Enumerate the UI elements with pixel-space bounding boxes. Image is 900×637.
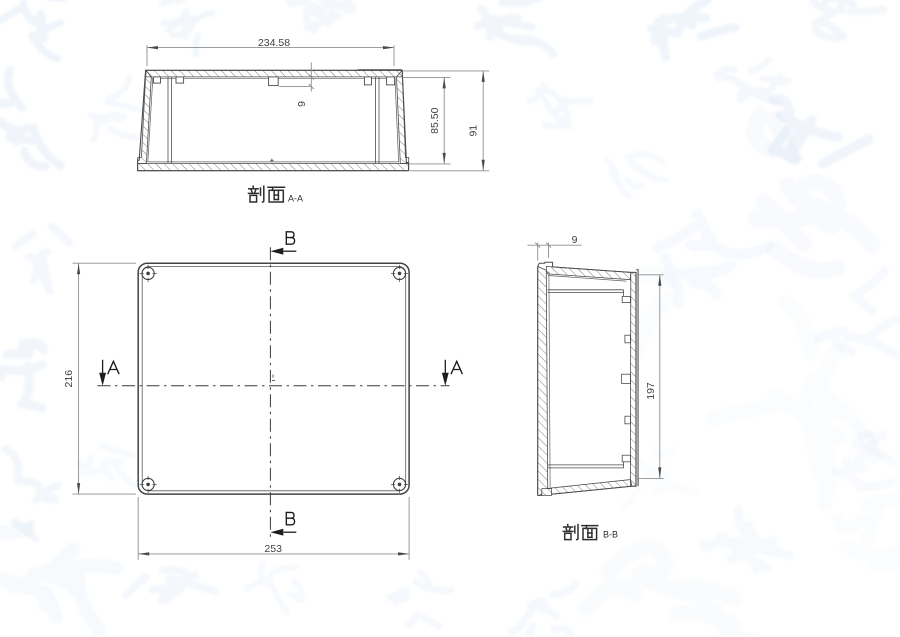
svg-text:9: 9 — [296, 101, 308, 107]
svg-text:253: 253 — [264, 543, 282, 555]
svg-text:9: 9 — [572, 234, 578, 246]
svg-text:A-A: A-A — [288, 194, 303, 204]
svg-text:B-B: B-B — [603, 530, 618, 540]
svg-text:216: 216 — [63, 370, 75, 388]
svg-text:85.50: 85.50 — [429, 107, 441, 133]
svg-text:197: 197 — [645, 382, 657, 400]
svg-text:91: 91 — [467, 125, 479, 137]
svg-text:234.58: 234.58 — [258, 37, 290, 49]
